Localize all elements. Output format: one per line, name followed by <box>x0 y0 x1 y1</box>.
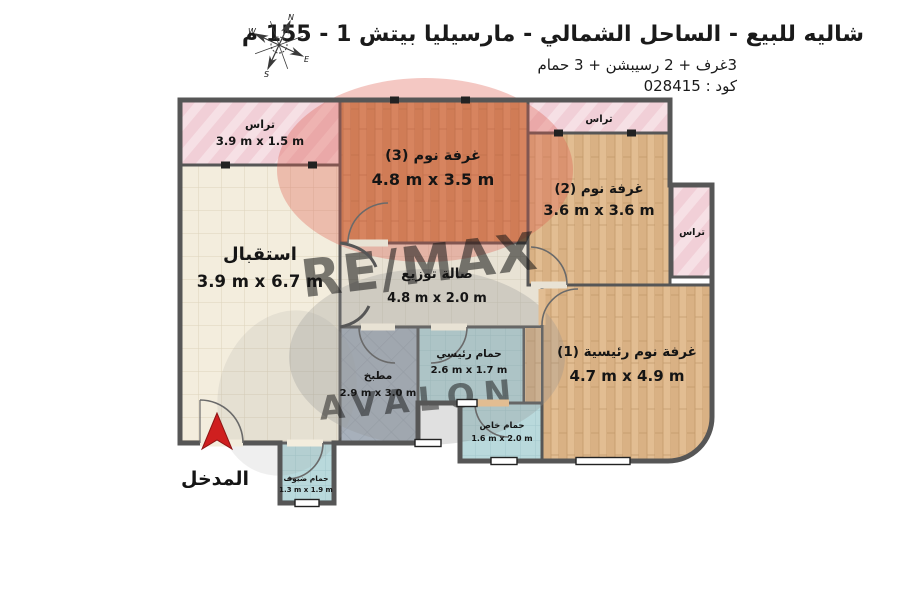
compass-s: S <box>264 70 269 79</box>
compass-icon: N E S W <box>246 10 312 84</box>
dims-master-bedroom: 4.7 m x 4.9 m <box>570 367 685 385</box>
label-bathroom-main: حمام رئيسي <box>436 348 501 360</box>
dims-hall: 4.8 m x 2.0 m <box>387 291 487 306</box>
label-bedroom-2: غرفة نوم (2) <box>554 181 643 197</box>
label-terrace-top-right: تراس <box>585 114 612 125</box>
label-bathroom-private: حمام خاص <box>480 421 525 431</box>
label-bathroom-guest: حمام ضيوف <box>283 474 328 483</box>
listing-code: كود : 028415 <box>644 77 737 95</box>
compass-e: E <box>304 55 310 64</box>
compass-n: N <box>288 13 294 22</box>
floorplan-page: { "header": { "title": "شاليه للبيع - ال… <box>0 0 900 600</box>
label-bedroom-3: غرفة نوم (3) <box>385 148 481 164</box>
dims-bedroom-2: 3.6 m x 3.6 m <box>543 203 654 219</box>
label-terrace-right: تراس <box>679 227 705 238</box>
label-hall: صالة توزيع <box>401 266 473 282</box>
dims-reception: 3.9 m x 6.7 m <box>197 272 323 291</box>
compass-w: W <box>248 27 257 36</box>
label-terrace-top-left: تراس <box>245 118 275 131</box>
label-kitchen: مطبخ <box>364 370 393 382</box>
dims-bedroom-3: 4.8 m x 3.5 m <box>372 170 495 189</box>
page-subtitle: 3غرف + 2 رسيبشن + 3 حمام <box>537 56 737 74</box>
label-master-bedroom: غرفة نوم رئيسية (1) <box>557 344 697 360</box>
page-title: شاليه للبيع - الساحل الشمالي - مارسيليا … <box>242 22 864 47</box>
label-reception: استقبال <box>223 244 297 265</box>
floorplan-drawing: RE/MAX AVALON <box>175 95 720 517</box>
entrance-label: المدخل <box>181 468 249 490</box>
dims-bathroom-main: 2.6 m x 1.7 m <box>431 365 508 376</box>
dims-terrace-top-left: 3.9 m x 1.5 m <box>216 134 304 148</box>
dims-kitchen: 2.9 m x 3.0 m <box>340 388 417 399</box>
dims-bathroom-guest: 1.3 m x 1.9 m <box>279 486 333 494</box>
dims-bathroom-private: 1.6 m x 2.0 m <box>471 434 532 443</box>
